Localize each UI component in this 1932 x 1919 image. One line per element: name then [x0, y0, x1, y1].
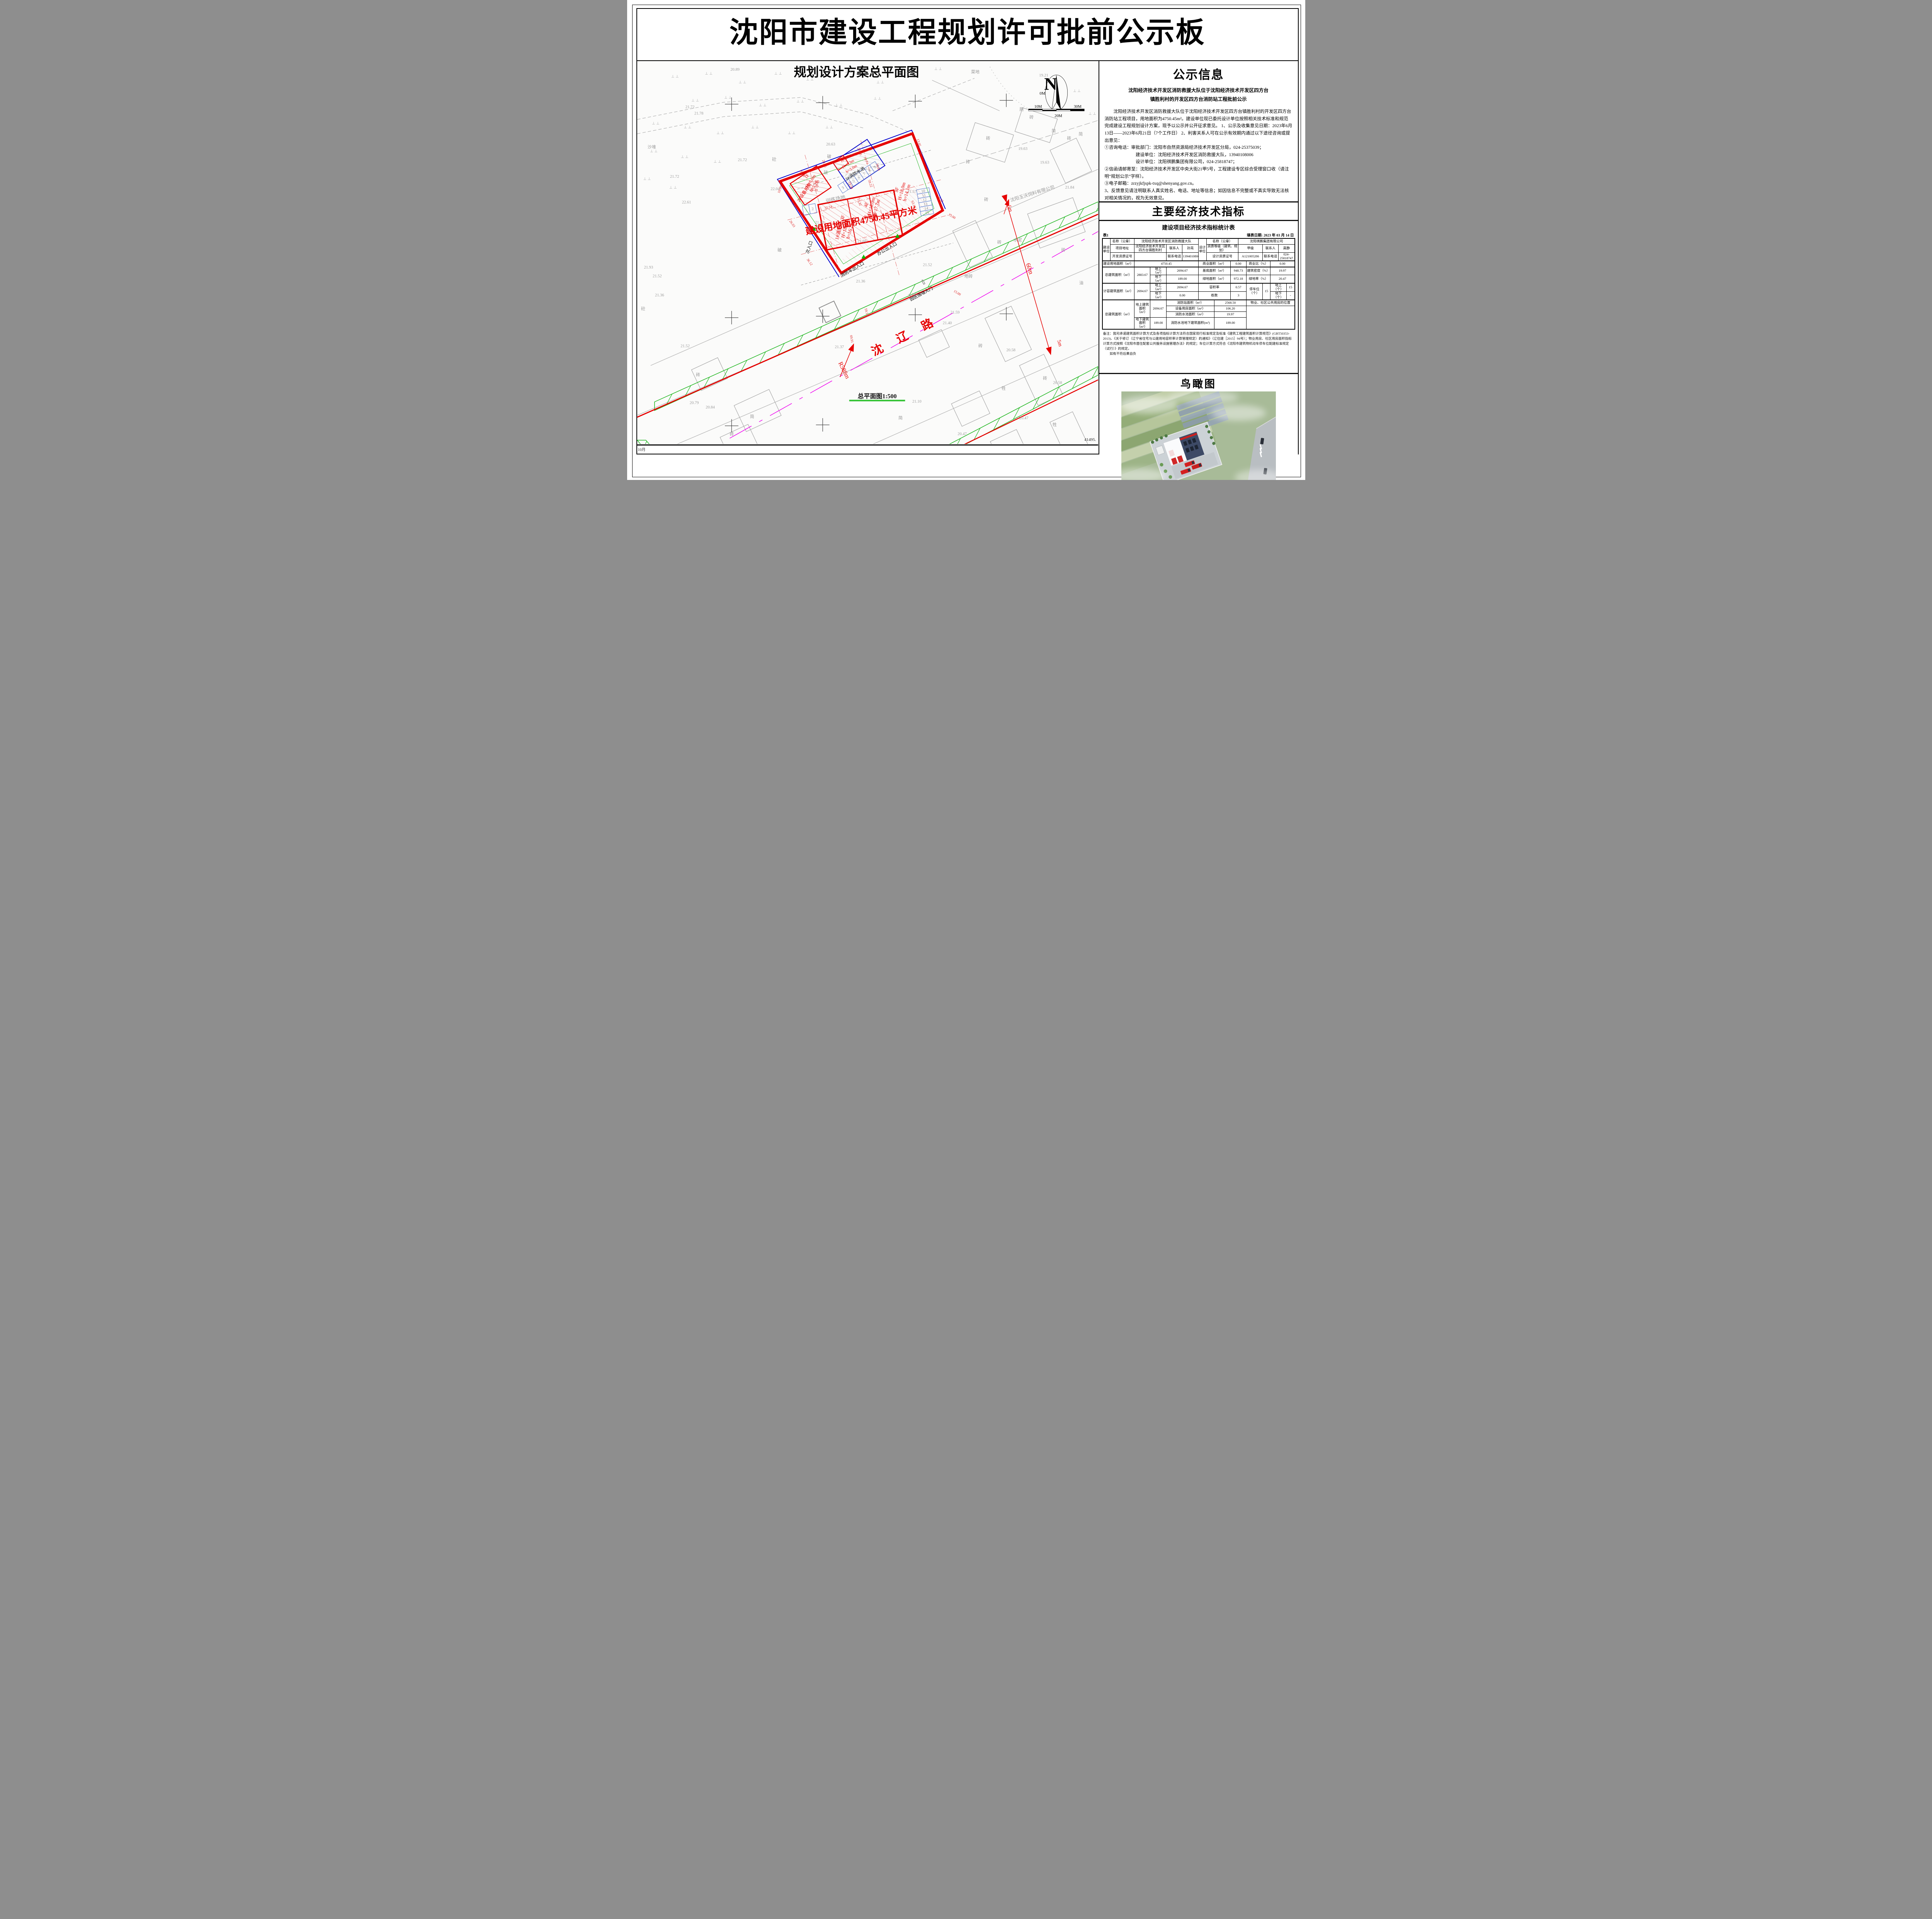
svg-text:⊥ ⊥: ⊥ ⊥	[787, 131, 795, 135]
svg-text:砖: 砖	[1061, 247, 1065, 253]
stats-table-title: 建设项目经济技术指标统计表	[1099, 223, 1298, 231]
svg-text:21.36: 21.36	[856, 279, 865, 284]
svg-text:简: 简	[1078, 131, 1083, 137]
svg-text:砖: 砖	[730, 431, 734, 437]
cell-pos-label: 物业、社区公共用房的位置	[1247, 300, 1295, 306]
svg-text:21.52: 21.52	[923, 263, 932, 267]
cell-design-phone-label: 联系电话	[1262, 252, 1278, 260]
svg-text:20.47: 20.47	[957, 432, 967, 436]
cell-design-phone: 024-25818747	[1279, 252, 1295, 260]
cell-density: 19.97	[1270, 267, 1295, 275]
svg-text:砖: 砖	[1067, 136, 1071, 141]
cell-design-contact-label: 联系人	[1262, 245, 1278, 253]
cell-below: 189.00	[1166, 275, 1198, 283]
stats-date-label: 填表日期: 2023 年 03 月 14 日	[1247, 232, 1294, 238]
cell-p-below: -	[1286, 291, 1294, 299]
stats-note: 备注：我司承诺建筑面积计算方式及各项指标计算方法符合国家现行标准规定及标准《建筑…	[1103, 331, 1294, 351]
cell-unit-name: 沈阳经济技术开发区消防救援大队	[1134, 238, 1198, 245]
cell-commercial: 0.00	[1230, 261, 1246, 267]
svg-text:⊥ ⊥: ⊥ ⊥	[724, 96, 731, 100]
svg-text:砖: 砖	[1029, 114, 1034, 120]
svg-text:20.84: 20.84	[706, 405, 715, 410]
cell-land-area-label: 建设用地面积（m²）	[1102, 261, 1134, 267]
notice-item-designer: 设计单位：沈阳祺鹏集团有限公司，024-25818747；	[1105, 158, 1293, 166]
cell-equip-label: 设备用房面积（m²）	[1166, 306, 1214, 311]
svg-text:总平面图1:500: 总平面图1:500	[857, 393, 896, 400]
svg-text:⊥ ⊥: ⊥ ⊥	[669, 186, 677, 190]
svg-text:⊥ ⊥: ⊥ ⊥	[934, 67, 942, 71]
notice-item-email: ③电子邮箱：zrzyjkfjspk-txq@shenyang.gov.cn。	[1105, 180, 1293, 187]
svg-text:21.84: 21.84	[1065, 185, 1074, 190]
svg-text:⊥ ⊥: ⊥ ⊥	[680, 155, 688, 159]
cell-total: 2883.67	[1134, 267, 1150, 284]
svg-text:21.88: 21.88	[857, 240, 866, 244]
cell-design-contact: 高静	[1279, 245, 1295, 253]
cell-total2-label: 总建筑面积（m²）	[1102, 300, 1134, 330]
svg-text:⊥ ⊥: ⊥ ⊥	[759, 104, 766, 107]
svg-text:砼: 砼	[772, 157, 776, 162]
cell-blocks-label: 栋数	[1198, 291, 1230, 299]
notice-item-phone: ①咨询电话：审批部门：沈阳市自然资源局经济技术开发区分局，024-2537503…	[1105, 144, 1293, 151]
svg-text:⊥ ⊥: ⊥ ⊥	[651, 122, 659, 126]
indicators-table: 建设单位 名称（公章） 沈阳经济技术开发区消防救援大队 设计单位 名称（公章） …	[1102, 238, 1295, 330]
svg-text:水泥: 水泥	[1013, 237, 1022, 242]
svg-text:21.78: 21.78	[694, 112, 703, 116]
svg-text:砖: 砖	[1043, 376, 1047, 381]
notice-item-mail: ②信函请邮寄至：沈阳经济技术开发区中央大街21甲5号，工程建设专区综合受理窗口收…	[1105, 166, 1293, 180]
cell-above: 2694.67	[1166, 267, 1198, 275]
cell-fs-label: 消防站面积（m²）	[1166, 300, 1214, 306]
cell-below-area-label: 地下建筑面积（m²）	[1134, 317, 1150, 329]
svg-text:20.58: 20.58	[1053, 381, 1062, 385]
svg-text:油: 油	[1079, 280, 1083, 286]
svg-text:⊥ ⊥: ⊥ ⊥	[796, 100, 804, 104]
svg-text:21.52: 21.52	[680, 344, 690, 348]
stats-note-2: 如有不符后果自负	[1103, 351, 1294, 356]
svg-text:21.59: 21.59	[950, 311, 959, 315]
aerial-rendering	[1121, 391, 1276, 480]
plan-title: 规划设计方案总平面图	[794, 65, 919, 79]
cell-capacity: 2694.67	[1134, 283, 1150, 300]
cell-design-label: 设计单位	[1198, 238, 1206, 261]
svg-text:21.72: 21.72	[685, 105, 694, 109]
cell-below-label: 地下（m²）	[1150, 275, 1166, 283]
cell-parking: 15	[1262, 283, 1270, 300]
svg-text:⊥ ⊥: ⊥ ⊥	[738, 81, 746, 85]
svg-text:⊥ ⊥: ⊥ ⊥	[873, 97, 881, 101]
cell-cap-below-label: 地下（m²）	[1150, 291, 1166, 299]
cell-green-rate-label: 绿地率（%）	[1247, 275, 1270, 283]
cell-pos-empty	[1247, 306, 1295, 329]
notice-paragraph: 沈阳经济技术开发区消防救援大队位于沈阳经济技术开发区四方台镇胜利村的开发区四方台…	[1105, 108, 1293, 144]
cell-phone-label: 联系电话	[1166, 252, 1182, 260]
cell-green-rate: 20.47	[1270, 275, 1295, 283]
cell-design-name-label: 名称（公章）	[1206, 238, 1238, 245]
svg-text:牲: 牲	[1001, 385, 1005, 391]
notice-section: 公示信息 沈阳经济技术开发区消防救援大队位于沈阳经济技术开发区四方台 镇胜利村的…	[1099, 61, 1298, 201]
cell-pool-below: 189.00	[1214, 317, 1247, 329]
cell-cap-below: 0.00	[1166, 291, 1198, 299]
svg-text:21.52: 21.52	[653, 274, 662, 278]
stats-sheet-label: 表1	[1103, 232, 1109, 238]
svg-text:⊥ ⊥: ⊥ ⊥	[650, 150, 657, 153]
svg-text:菜地: 菜地	[971, 70, 980, 75]
cell-above-area: 2694.67	[1150, 300, 1166, 318]
svg-text:破: 破	[823, 170, 828, 175]
svg-text:地砖: 地砖	[964, 273, 973, 279]
cell-cap-above-label: 地上（m²）	[1150, 283, 1166, 291]
svg-text:⊥ ⊥: ⊥ ⊥	[713, 160, 721, 164]
svg-text:厕: 厕	[1019, 107, 1024, 112]
svg-text:20.58: 20.58	[1006, 348, 1015, 352]
svg-text:21.37: 21.37	[835, 345, 844, 349]
svg-text:⊥ ⊥: ⊥ ⊥	[751, 126, 759, 129]
page-title: 沈阳市建设工程规划许可批前公示板	[636, 12, 1299, 54]
cell-p-above-label: 地上（个）	[1270, 283, 1286, 291]
svg-text:简: 简	[750, 414, 754, 419]
cell-unit-label: 建设单位	[1102, 238, 1111, 261]
notice-subtitle-line1: 沈阳经济技术开发区消防救援大队位于沈阳经济技术开发区四方台	[1103, 86, 1294, 95]
cell-contact-label: 联系人	[1166, 245, 1182, 253]
svg-text:⊥ ⊥: ⊥ ⊥	[876, 81, 884, 85]
svg-text:砖: 砖	[978, 343, 982, 348]
svg-text:砖: 砖	[997, 240, 1001, 245]
footer-partial-text: 10月	[638, 446, 646, 452]
cell-base: 948.73	[1230, 267, 1246, 275]
svg-text:砼: 砼	[641, 306, 645, 311]
sheet-number: 41495.	[1044, 437, 1096, 442]
cell-above-label: 地上（m²）	[1150, 267, 1166, 275]
cell-addr: 沈阳经济技术开发区四方台镇胜利村	[1134, 245, 1166, 253]
svg-text:沙堆: 沙堆	[647, 145, 656, 150]
notice-body: 沈阳经济技术开发区消防救援大队位于沈阳经济技术开发区四方台镇胜利村的开发区四方台…	[1105, 108, 1293, 201]
indicators-heading: 主要经济技术指标	[1099, 203, 1298, 221]
svg-text:砖: 砖	[984, 197, 988, 202]
cell-qual: 甲级	[1238, 245, 1262, 253]
notice-title: 公示信息	[1099, 65, 1298, 82]
svg-text:⊥ ⊥: ⊥ ⊥	[905, 70, 913, 74]
cell-addr-label: 项目地址	[1110, 245, 1134, 253]
svg-text:⊥ ⊥: ⊥ ⊥	[643, 177, 651, 181]
cell-green-area: 972.18	[1230, 275, 1246, 283]
svg-text:砖: 砖	[986, 136, 990, 141]
svg-text:⊥ ⊥: ⊥ ⊥	[691, 99, 699, 103]
svg-text:⊥ ⊥: ⊥ ⊥	[844, 70, 852, 74]
svg-text:21.72: 21.72	[670, 175, 679, 179]
site-plan: 101112131415 3456789 12 ⇧	[637, 61, 1098, 444]
cell-name-label: 名称（公章）	[1110, 238, 1134, 245]
scale-bar	[1028, 109, 1084, 111]
cell-land-area: 4750.45	[1134, 261, 1198, 267]
cell-commercial-label: 商业面积（m²）	[1198, 261, 1230, 267]
svg-text:⊥ ⊥: ⊥ ⊥	[1073, 89, 1080, 93]
cell-pool: 19.97	[1214, 311, 1247, 317]
info-panel: 公示信息 沈阳经济技术开发区消防救援大队位于沈阳经济技术开发区四方台 镇胜利村的…	[1099, 61, 1298, 454]
notice-subtitle-line2: 镇胜利村的开发区四方台消防站工程批前公示	[1103, 95, 1294, 104]
cell-density-label: 建筑密度（%）	[1247, 267, 1270, 275]
svg-text:破: 破	[827, 154, 831, 159]
svg-text:简: 简	[1051, 128, 1056, 133]
svg-text:20M: 20M	[1054, 114, 1062, 118]
site-plan-drawing: 101112131415 3456789 12 ⇧	[637, 61, 1098, 444]
svg-text:牲: 牲	[1053, 422, 1057, 427]
svg-text:⊥ ⊥: ⊥ ⊥	[825, 126, 833, 129]
svg-text:⊥ ⊥: ⊥ ⊥	[671, 75, 679, 79]
svg-text:20.79: 20.79	[689, 401, 699, 405]
svg-text:⊥ ⊥: ⊥ ⊥	[1088, 112, 1096, 116]
cell-phone: 1394010806	[1182, 252, 1198, 260]
cell-equip: 106.20	[1214, 306, 1247, 311]
svg-text:21.93: 21.93	[644, 265, 653, 270]
cell-p-below-label: 地下（个）	[1270, 291, 1286, 299]
cell-qual-label: 资质等级（建筑、规划）	[1206, 245, 1238, 253]
svg-text:0M: 0M	[1039, 92, 1045, 96]
cell-pool-below-label: 消防水池地下建筑面积(m²)	[1166, 317, 1214, 329]
svg-text:简: 简	[898, 415, 902, 420]
notice-item-feedback: 3、反馈意见请注明联系人真实姓名、电话、地址等信息；如因信息不完整或不真实导致无…	[1105, 187, 1293, 201]
svg-text:19.63: 19.63	[1018, 147, 1027, 151]
svg-text:砖: 砖	[966, 159, 970, 165]
svg-text:21.72: 21.72	[738, 158, 747, 162]
svg-text:破: 破	[777, 247, 782, 253]
cell-cap-above: 2694.67	[1166, 283, 1198, 291]
svg-text:22.61: 22.61	[682, 201, 691, 205]
svg-text:⊥ ⊥: ⊥ ⊥	[716, 131, 724, 135]
svg-text:⊥ ⊥: ⊥ ⊥	[684, 126, 691, 129]
svg-text:19.63: 19.63	[1040, 161, 1049, 165]
svg-text:21.40: 21.40	[942, 321, 952, 325]
svg-text:N: N	[1044, 74, 1057, 94]
caption-underline	[849, 400, 905, 401]
aerial-title: 鸟瞰图	[1099, 376, 1298, 391]
aerial-section: 鸟瞰图	[1099, 373, 1298, 454]
svg-text:20.47: 20.47	[1019, 416, 1028, 420]
notice-item-builder: 建设单位：沈阳经济技术开发区消防救援大队，13940108006	[1105, 151, 1293, 159]
svg-text:⊥ ⊥: ⊥ ⊥	[774, 72, 782, 76]
cell-blocks: 3	[1230, 291, 1246, 299]
svg-text:21.36: 21.36	[655, 293, 664, 298]
svg-text:砖: 砖	[696, 372, 700, 378]
cell-above-area-label: 地上建筑面积（m²）	[1134, 300, 1150, 318]
svg-text:20.63: 20.63	[826, 143, 835, 147]
cell-design-name: 沈阳祺鹏集团有限公司	[1238, 238, 1295, 245]
svg-text:15: 15	[925, 211, 929, 216]
svg-text:20.89: 20.89	[730, 68, 740, 72]
cell-commercial-ratio: 0.00	[1270, 261, 1295, 267]
cell-far: 0.57	[1230, 283, 1246, 291]
cell-fs: 2568.50	[1214, 300, 1247, 306]
cell-dev-cert	[1134, 252, 1166, 260]
indicators-section: 主要经济技术指标 建设项目经济技术指标统计表 表1 填表日期: 2023 年 0…	[1099, 201, 1298, 373]
svg-text:⊥ ⊥: ⊥ ⊥	[806, 78, 813, 82]
cell-contact: 孙亮	[1182, 245, 1198, 253]
svg-text:⊥ ⊥: ⊥ ⊥	[835, 104, 842, 107]
svg-text:21.10: 21.10	[912, 400, 922, 404]
plan-bottom-border	[637, 444, 1098, 446]
svg-text:⊥ ⊥: ⊥ ⊥	[705, 72, 713, 76]
cell-total-label: 总建筑面积（m²）	[1102, 267, 1134, 284]
cell-dev-cert-label: 开发资质证号	[1110, 252, 1134, 260]
svg-text:10M: 10M	[1034, 105, 1042, 109]
svg-text:30M: 30M	[1073, 105, 1081, 109]
cell-commercial-ratio-label: 商业比（%）	[1247, 261, 1270, 267]
cell-capacity-label: 计容建筑面积（m²）	[1102, 283, 1134, 300]
notice-board-sheet: 沈阳市建设工程规划许可批前公示板	[627, 0, 1305, 480]
cell-design-cert: A121005286	[1238, 252, 1262, 260]
cell-pool-label: 消防水池面积（m²）	[1166, 311, 1214, 317]
cell-green-area-label: 绿地面积（m²）	[1198, 275, 1230, 283]
cell-p-above: 15	[1286, 283, 1294, 291]
cell-far-label: 容积率	[1198, 283, 1230, 291]
cell-below-area: 189.00	[1150, 317, 1166, 329]
cell-parking-label: 停车位（个）	[1247, 283, 1262, 300]
cell-base-label: 基底面积（m²）	[1198, 267, 1230, 275]
cell-design-cert-label: 设计资质证号	[1206, 252, 1238, 260]
